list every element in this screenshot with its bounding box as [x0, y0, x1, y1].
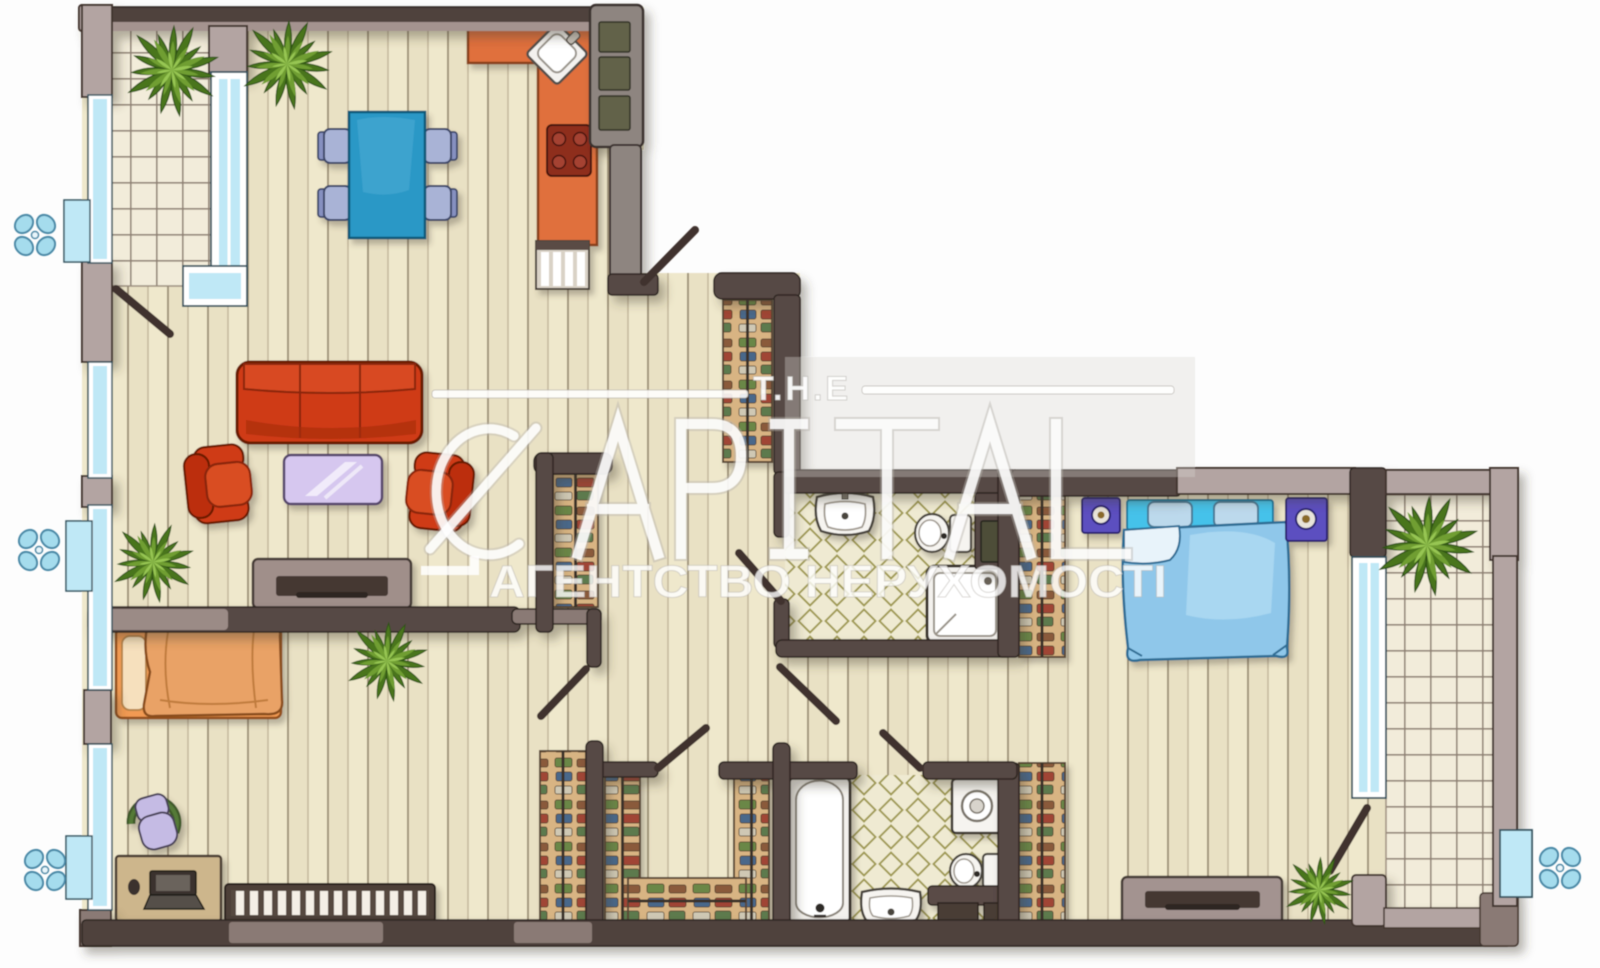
svg-text:АГЕНТСТВО НЕРУХОМОСТІ: АГЕНТСТВО НЕРУХОМОСТІ: [489, 556, 1167, 607]
svg-text:T.H.E: T.H.E: [753, 370, 851, 408]
